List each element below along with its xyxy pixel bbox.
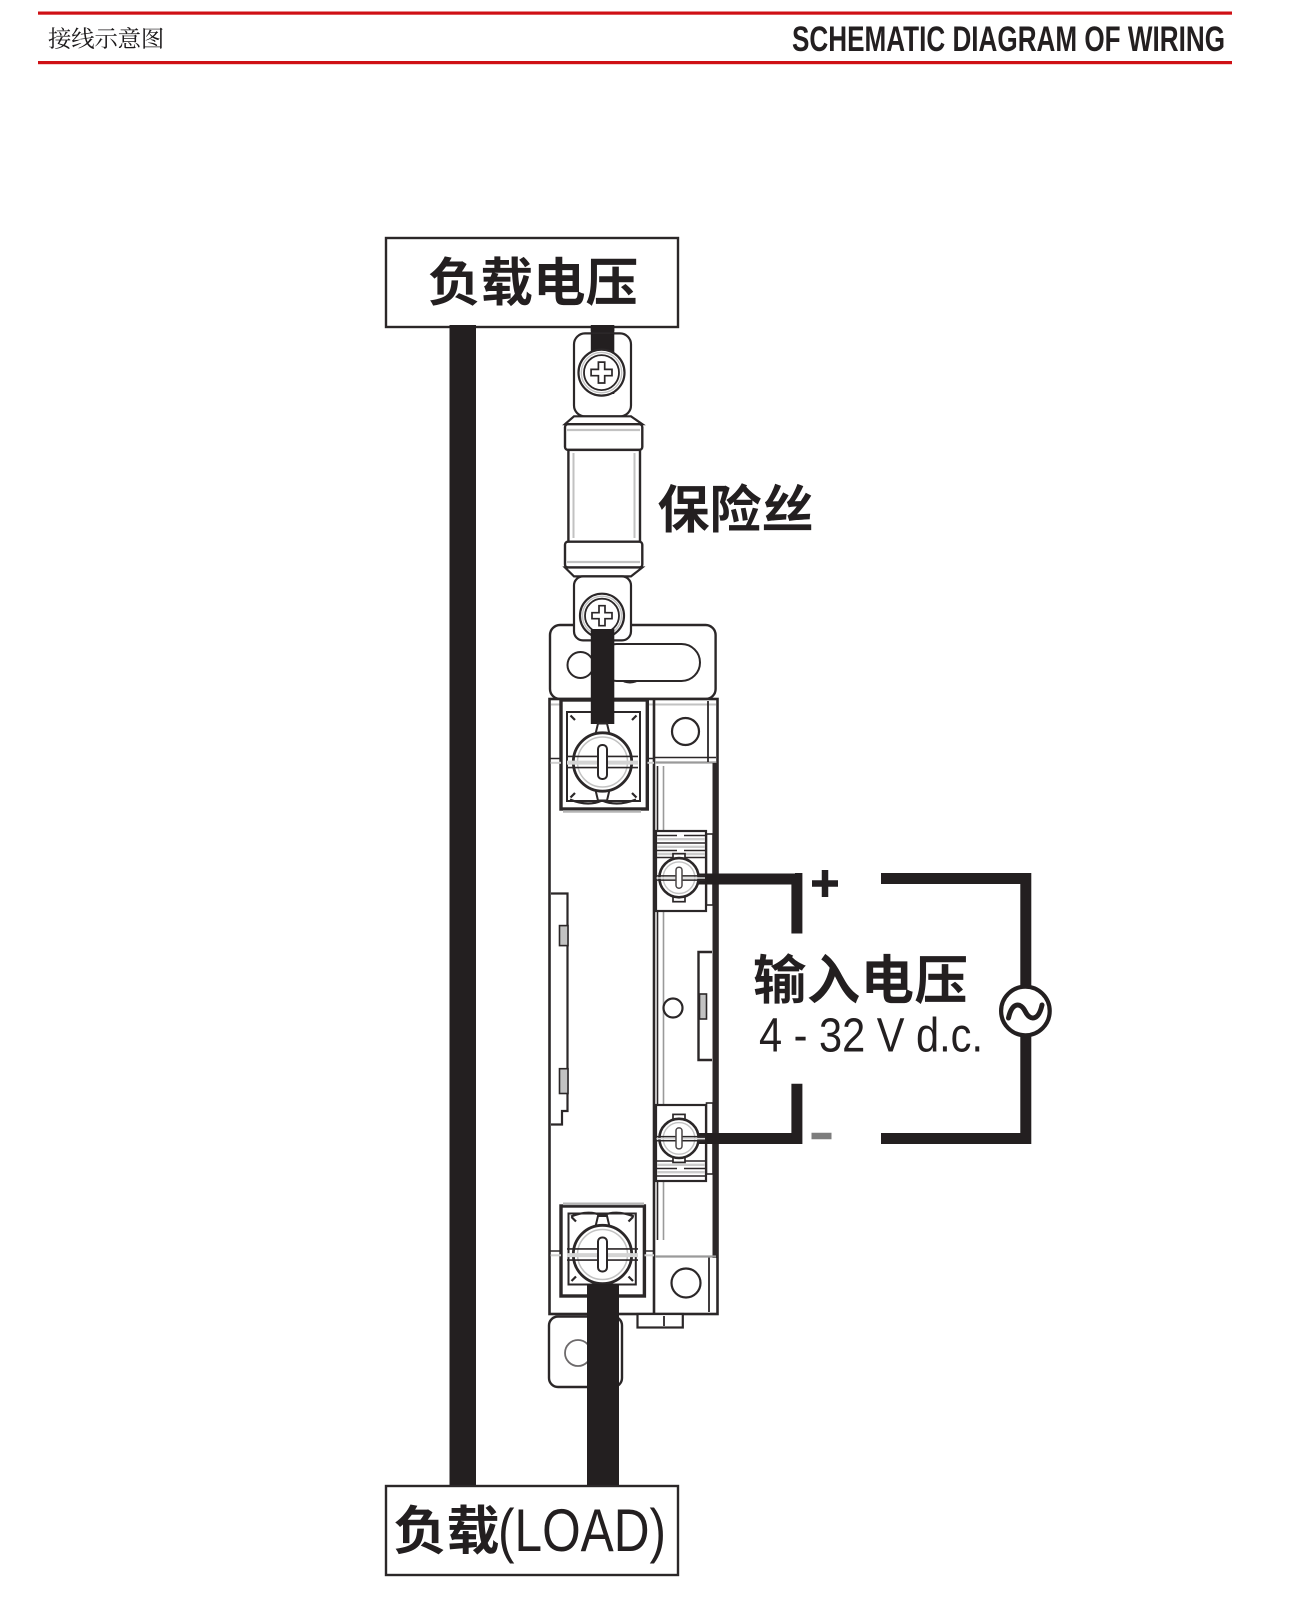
svg-text:4 - 32 V d.c.: 4 - 32 V d.c. [759,1010,983,1063]
svg-text:(LOAD): (LOAD) [498,1497,666,1564]
svg-text:SCHEMATIC DIAGRAM OF WIRING: SCHEMATIC DIAGRAM OF WIRING [792,20,1225,59]
